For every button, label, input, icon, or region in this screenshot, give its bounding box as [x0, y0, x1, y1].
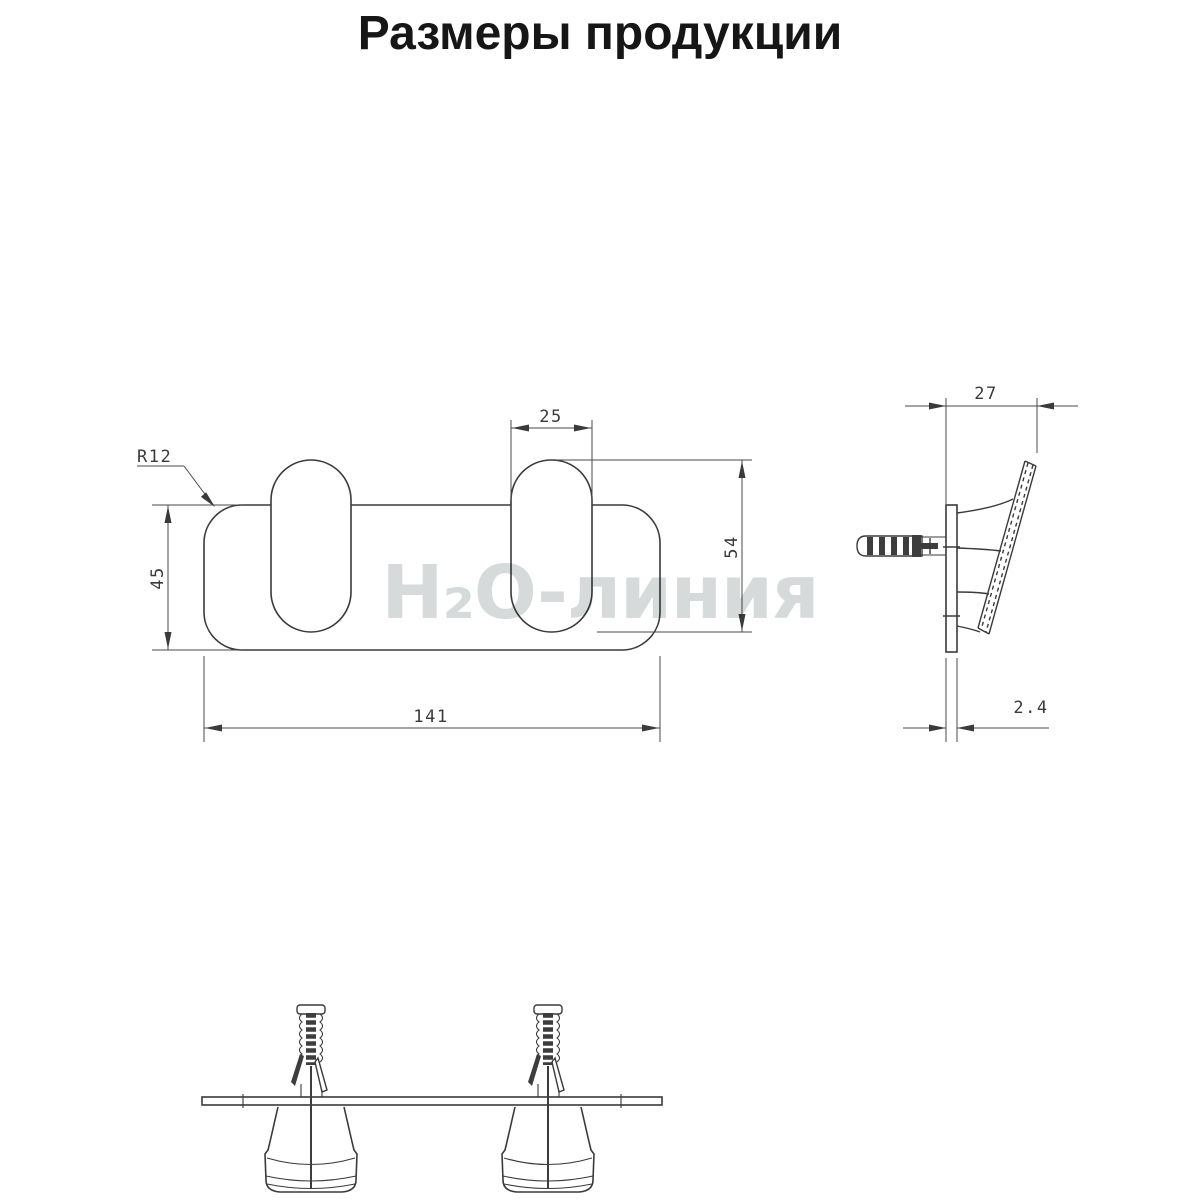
- product-dimensions-page: Размеры продукции 45 R12: [0, 0, 1200, 1200]
- technical-drawing: 45 R12 25: [0, 0, 1200, 1200]
- bottom-backplate: [202, 1097, 662, 1105]
- dim-corner-radius: R12: [137, 447, 215, 507]
- bottom-view: [202, 1005, 662, 1192]
- dim-label-r12: R12: [137, 447, 172, 467]
- side-wall-anchor: [857, 535, 946, 557]
- side-backplate: [946, 505, 957, 652]
- dim-label-25: 25: [539, 407, 562, 427]
- dim-label-45: 45: [148, 566, 168, 589]
- front-hook-left: [271, 460, 351, 632]
- dim-label-2-4: 2.4: [1013, 698, 1048, 718]
- front-hook-right: [511, 460, 592, 632]
- dim-label-141: 141: [413, 707, 448, 727]
- side-view: 27 2.4: [857, 384, 1078, 742]
- dim-thickness: 2.4: [903, 658, 1049, 742]
- front-view: 45 R12 25: [137, 407, 752, 742]
- dim-label-54: 54: [722, 535, 742, 558]
- side-hook: [957, 461, 1036, 634]
- dim-depth: 27: [905, 384, 1078, 504]
- dim-plate-width: 141: [204, 656, 660, 742]
- dim-label-27: 27: [974, 384, 997, 404]
